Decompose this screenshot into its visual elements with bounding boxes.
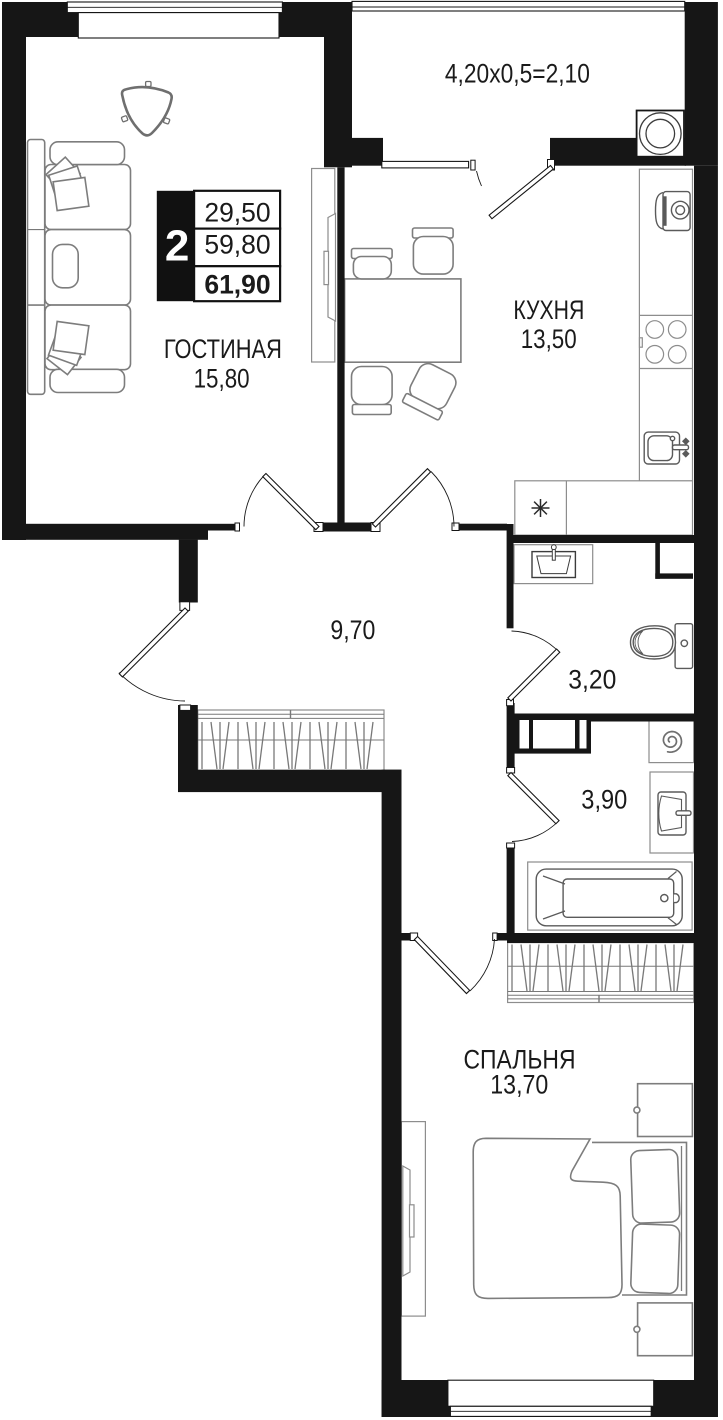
svg-text:15,80: 15,80 (194, 364, 250, 394)
svg-text:29,50: 29,50 (204, 198, 270, 228)
svg-text:9,70: 9,70 (330, 615, 375, 645)
svg-text:КУХНЯ: КУХНЯ (513, 295, 584, 325)
svg-text:61,90: 61,90 (204, 270, 270, 300)
svg-text:3,20: 3,20 (568, 665, 616, 695)
svg-text:13,50: 13,50 (521, 324, 577, 354)
svg-text:13,70: 13,70 (490, 1070, 548, 1100)
svg-text:3,90: 3,90 (581, 785, 627, 815)
svg-text:59,80: 59,80 (204, 230, 270, 260)
svg-text:ГОСТИНАЯ: ГОСТИНАЯ (164, 334, 282, 364)
svg-text:2: 2 (165, 222, 189, 271)
svg-text:4,20x0,5=2,10: 4,20x0,5=2,10 (445, 59, 590, 89)
